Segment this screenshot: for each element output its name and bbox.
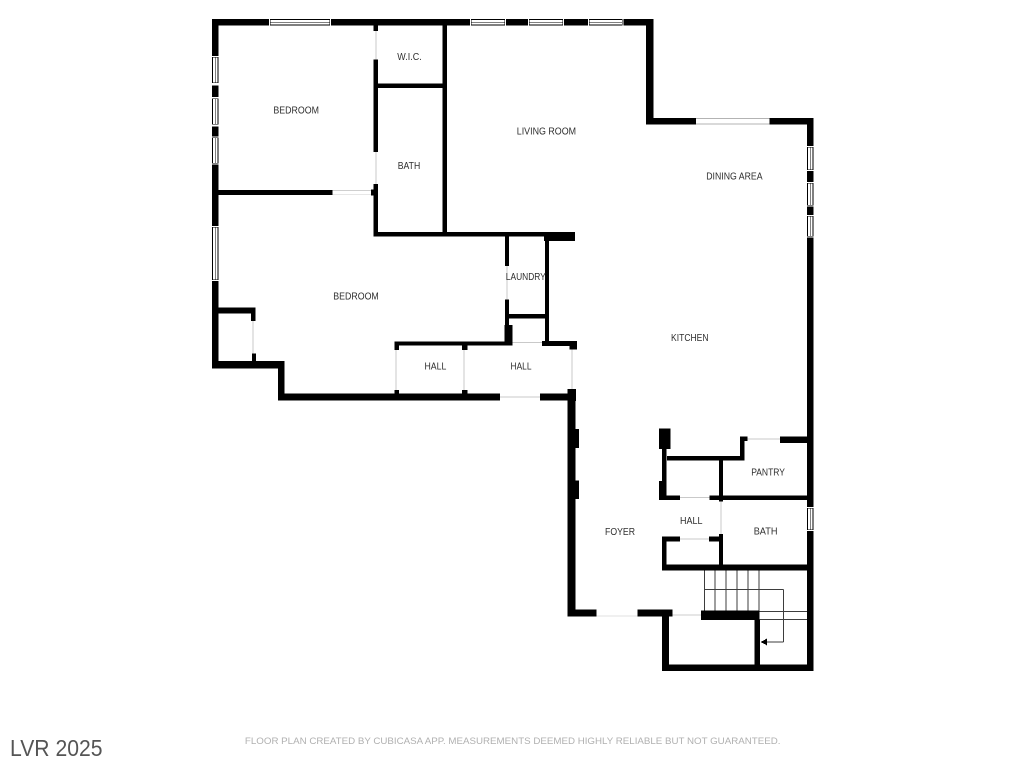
- svg-text:BATH: BATH: [754, 526, 778, 538]
- svg-text:LIVING ROOM: LIVING ROOM: [517, 126, 576, 138]
- svg-text:HALL: HALL: [425, 361, 447, 373]
- svg-text:PANTRY: PANTRY: [751, 467, 785, 479]
- svg-text:FOYER: FOYER: [605, 526, 635, 538]
- svg-text:LAUNDRY: LAUNDRY: [506, 271, 546, 283]
- svg-text:HALL: HALL: [680, 515, 703, 527]
- svg-text:BEDROOM: BEDROOM: [273, 104, 319, 116]
- svg-text:BEDROOM: BEDROOM: [333, 291, 379, 303]
- svg-text:W.I.C.: W.I.C.: [397, 51, 421, 63]
- svg-text:HALL: HALL: [511, 361, 532, 373]
- svg-text:BATH: BATH: [398, 160, 421, 172]
- svg-text:KITCHEN: KITCHEN: [671, 332, 709, 344]
- svg-text:FLOOR PLAN CREATED BY CUBICASA: FLOOR PLAN CREATED BY CUBICASA APP. MEAS…: [245, 736, 781, 747]
- svg-text:DINING AREA: DINING AREA: [706, 171, 762, 183]
- svg-text:LVR 2025: LVR 2025: [10, 735, 103, 761]
